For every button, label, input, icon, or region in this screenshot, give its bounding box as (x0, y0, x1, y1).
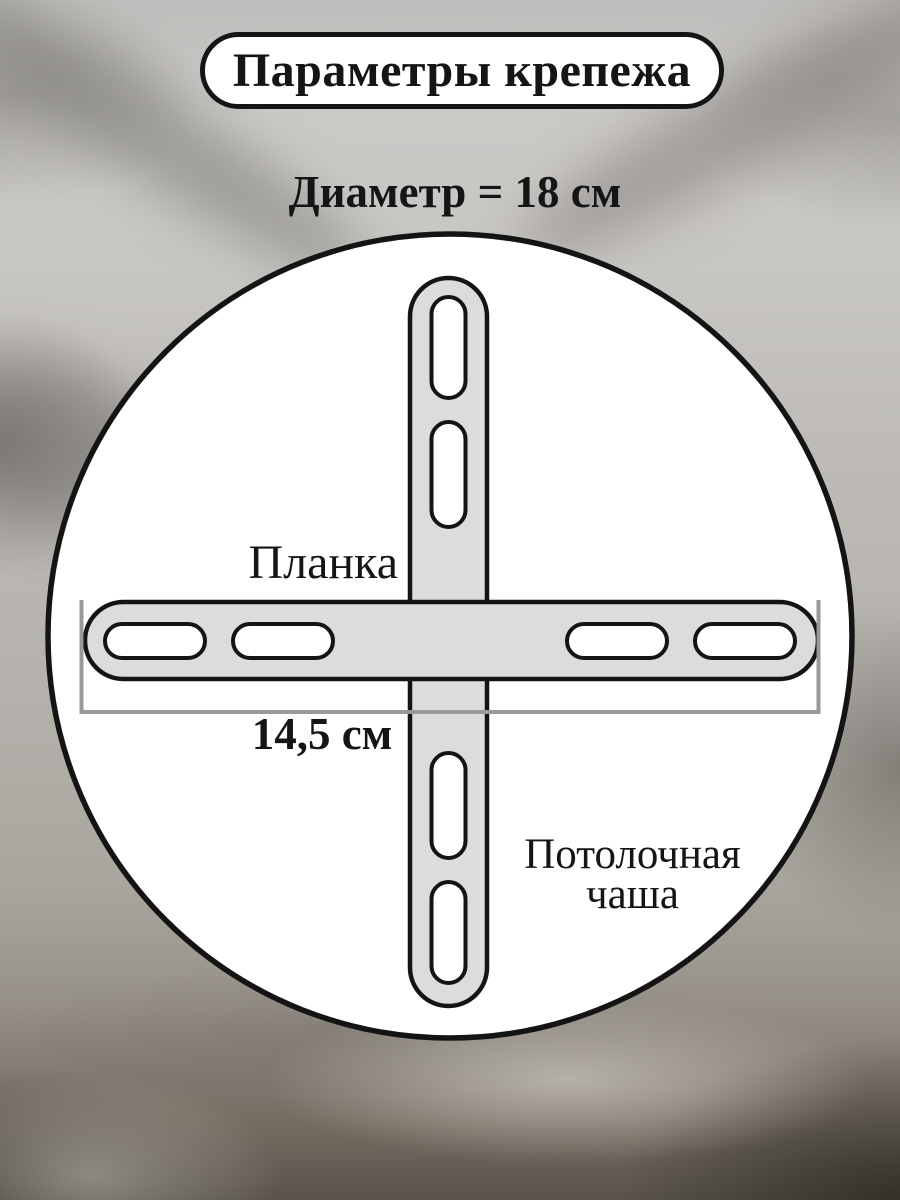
slot-right-2 (695, 624, 795, 658)
plank-length-label: 14,5 см (242, 712, 402, 757)
slot-left-1 (105, 624, 205, 658)
product-infographic: Параметры крепежа Диаметр = 18 см Планка… (0, 0, 900, 1200)
slot-top-1 (432, 297, 466, 398)
ceiling-cup-label-line1: Потолочная (505, 835, 760, 875)
mounting-diagram-svg (0, 0, 900, 1200)
ceiling-cup-label: Потолочная чаша (505, 835, 760, 915)
slot-top-2 (432, 422, 466, 527)
plank-label: Планка (248, 539, 398, 587)
slot-bottom-1 (432, 753, 466, 858)
slot-right-1 (567, 624, 667, 658)
slot-left-2 (233, 624, 333, 658)
ceiling-cup-label-line2: чаша (505, 875, 760, 915)
slot-bottom-2 (432, 882, 466, 983)
